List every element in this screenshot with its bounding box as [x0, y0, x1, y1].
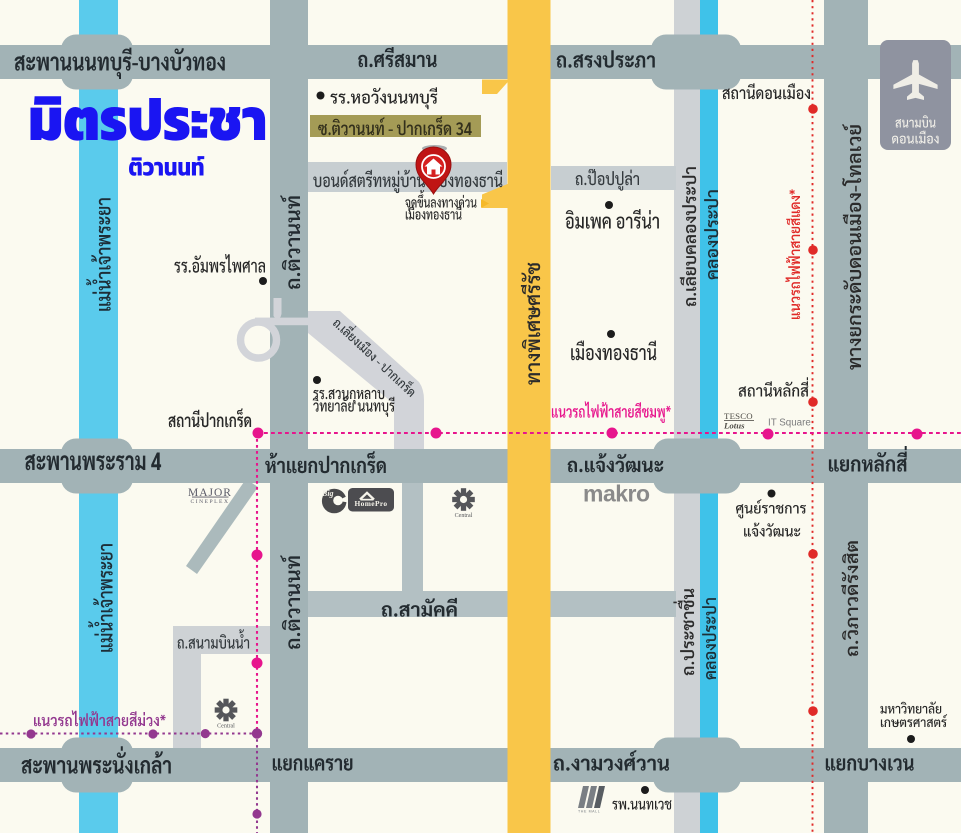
svg-text:makro: makro — [583, 481, 650, 507]
svg-text:Central: Central — [455, 513, 473, 519]
svg-text:CINEPLEX: CINEPLEX — [190, 499, 229, 505]
svg-text:TESCO: TESCO — [724, 411, 753, 421]
svg-text:THE MALL: THE MALL — [578, 810, 600, 814]
svg-text:HomePro: HomePro — [354, 499, 387, 508]
svg-text:Central: Central — [217, 724, 235, 730]
svg-text:IT Square: IT Square — [768, 418, 811, 429]
svg-text:Lotus: Lotus — [723, 421, 745, 431]
svg-text:Big: Big — [321, 489, 334, 498]
